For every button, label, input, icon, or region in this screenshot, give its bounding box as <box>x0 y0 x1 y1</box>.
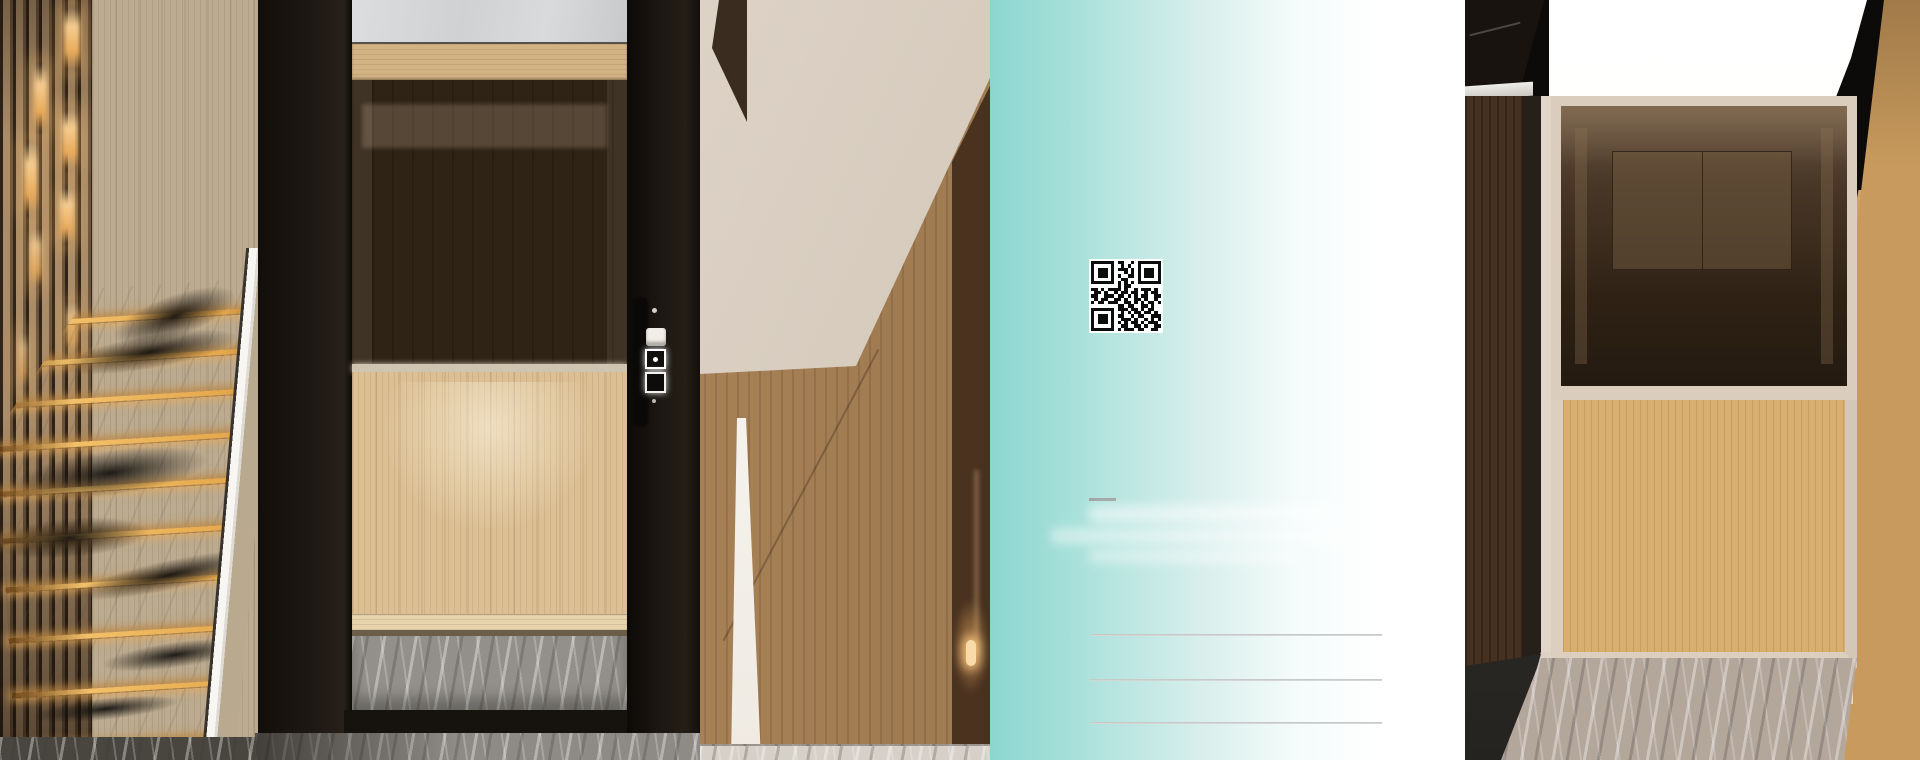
brochure-panel <box>990 0 1465 760</box>
sconce-light <box>62 108 77 172</box>
contact-line <box>1090 679 1382 681</box>
cabin-tinted-mirror <box>1551 96 1857 400</box>
sconce-light <box>34 62 47 134</box>
oak-header-band <box>352 44 627 80</box>
sconce-light <box>18 330 28 390</box>
lower-wall-grain <box>1563 400 1845 652</box>
landing-sconce-core <box>966 640 976 666</box>
glass-reflection <box>362 104 607 148</box>
left-cream-frame-strip <box>1541 96 1551 658</box>
glass-edge-light <box>352 80 372 368</box>
cabinet-divider-line <box>1702 152 1703 270</box>
ghost-text-line <box>1088 549 1298 563</box>
glass-edge-light <box>607 80 627 368</box>
key-switch <box>646 328 666 346</box>
left-frame-black-edge <box>1522 96 1542 664</box>
button-light-dot <box>653 357 658 362</box>
cab-interior-oak-wall <box>352 372 627 630</box>
left-photo-staircase-lift <box>0 0 990 760</box>
mirror-reflected-cabinet <box>1612 151 1791 271</box>
panel-indicator-dot <box>652 308 657 313</box>
cabin-lower-oak-wall <box>1551 400 1857 668</box>
mirror-side-pillar <box>1575 128 1586 363</box>
sconce-light <box>60 186 74 246</box>
call-button-down <box>645 372 666 393</box>
floor-under-stairs <box>0 737 256 760</box>
sconce-light <box>24 140 37 218</box>
underline-dash <box>1089 498 1116 501</box>
cab-divider-strip <box>352 364 627 372</box>
ghost-text-line <box>1088 505 1338 523</box>
qr-code <box>1089 259 1163 333</box>
tinted-glass-upper <box>352 80 627 368</box>
contact-line <box>1090 722 1382 724</box>
sconce-light <box>64 6 80 72</box>
ghost-text-line <box>1050 528 1350 544</box>
panel-indicator-dot <box>652 399 656 403</box>
transom-glass <box>352 0 627 44</box>
floor-shadow <box>255 733 700 760</box>
landing-marble-floor <box>700 744 990 760</box>
lift-frame-left-column <box>258 0 352 745</box>
left-walnut-panel <box>1465 96 1522 668</box>
cab-wall-highlight <box>382 382 597 532</box>
cab-skirting <box>352 614 627 630</box>
brochure-spread <box>0 0 1920 760</box>
right-photo-lift-cabin <box>1465 0 1920 760</box>
sconce-light <box>30 226 42 290</box>
mirror-side-pillar <box>1821 128 1832 363</box>
contact-line <box>1090 634 1382 636</box>
qr-code-grid <box>1091 261 1161 331</box>
lift-door-opening <box>352 0 627 745</box>
cab-stone-floor <box>352 636 627 712</box>
call-button-up <box>645 349 666 369</box>
